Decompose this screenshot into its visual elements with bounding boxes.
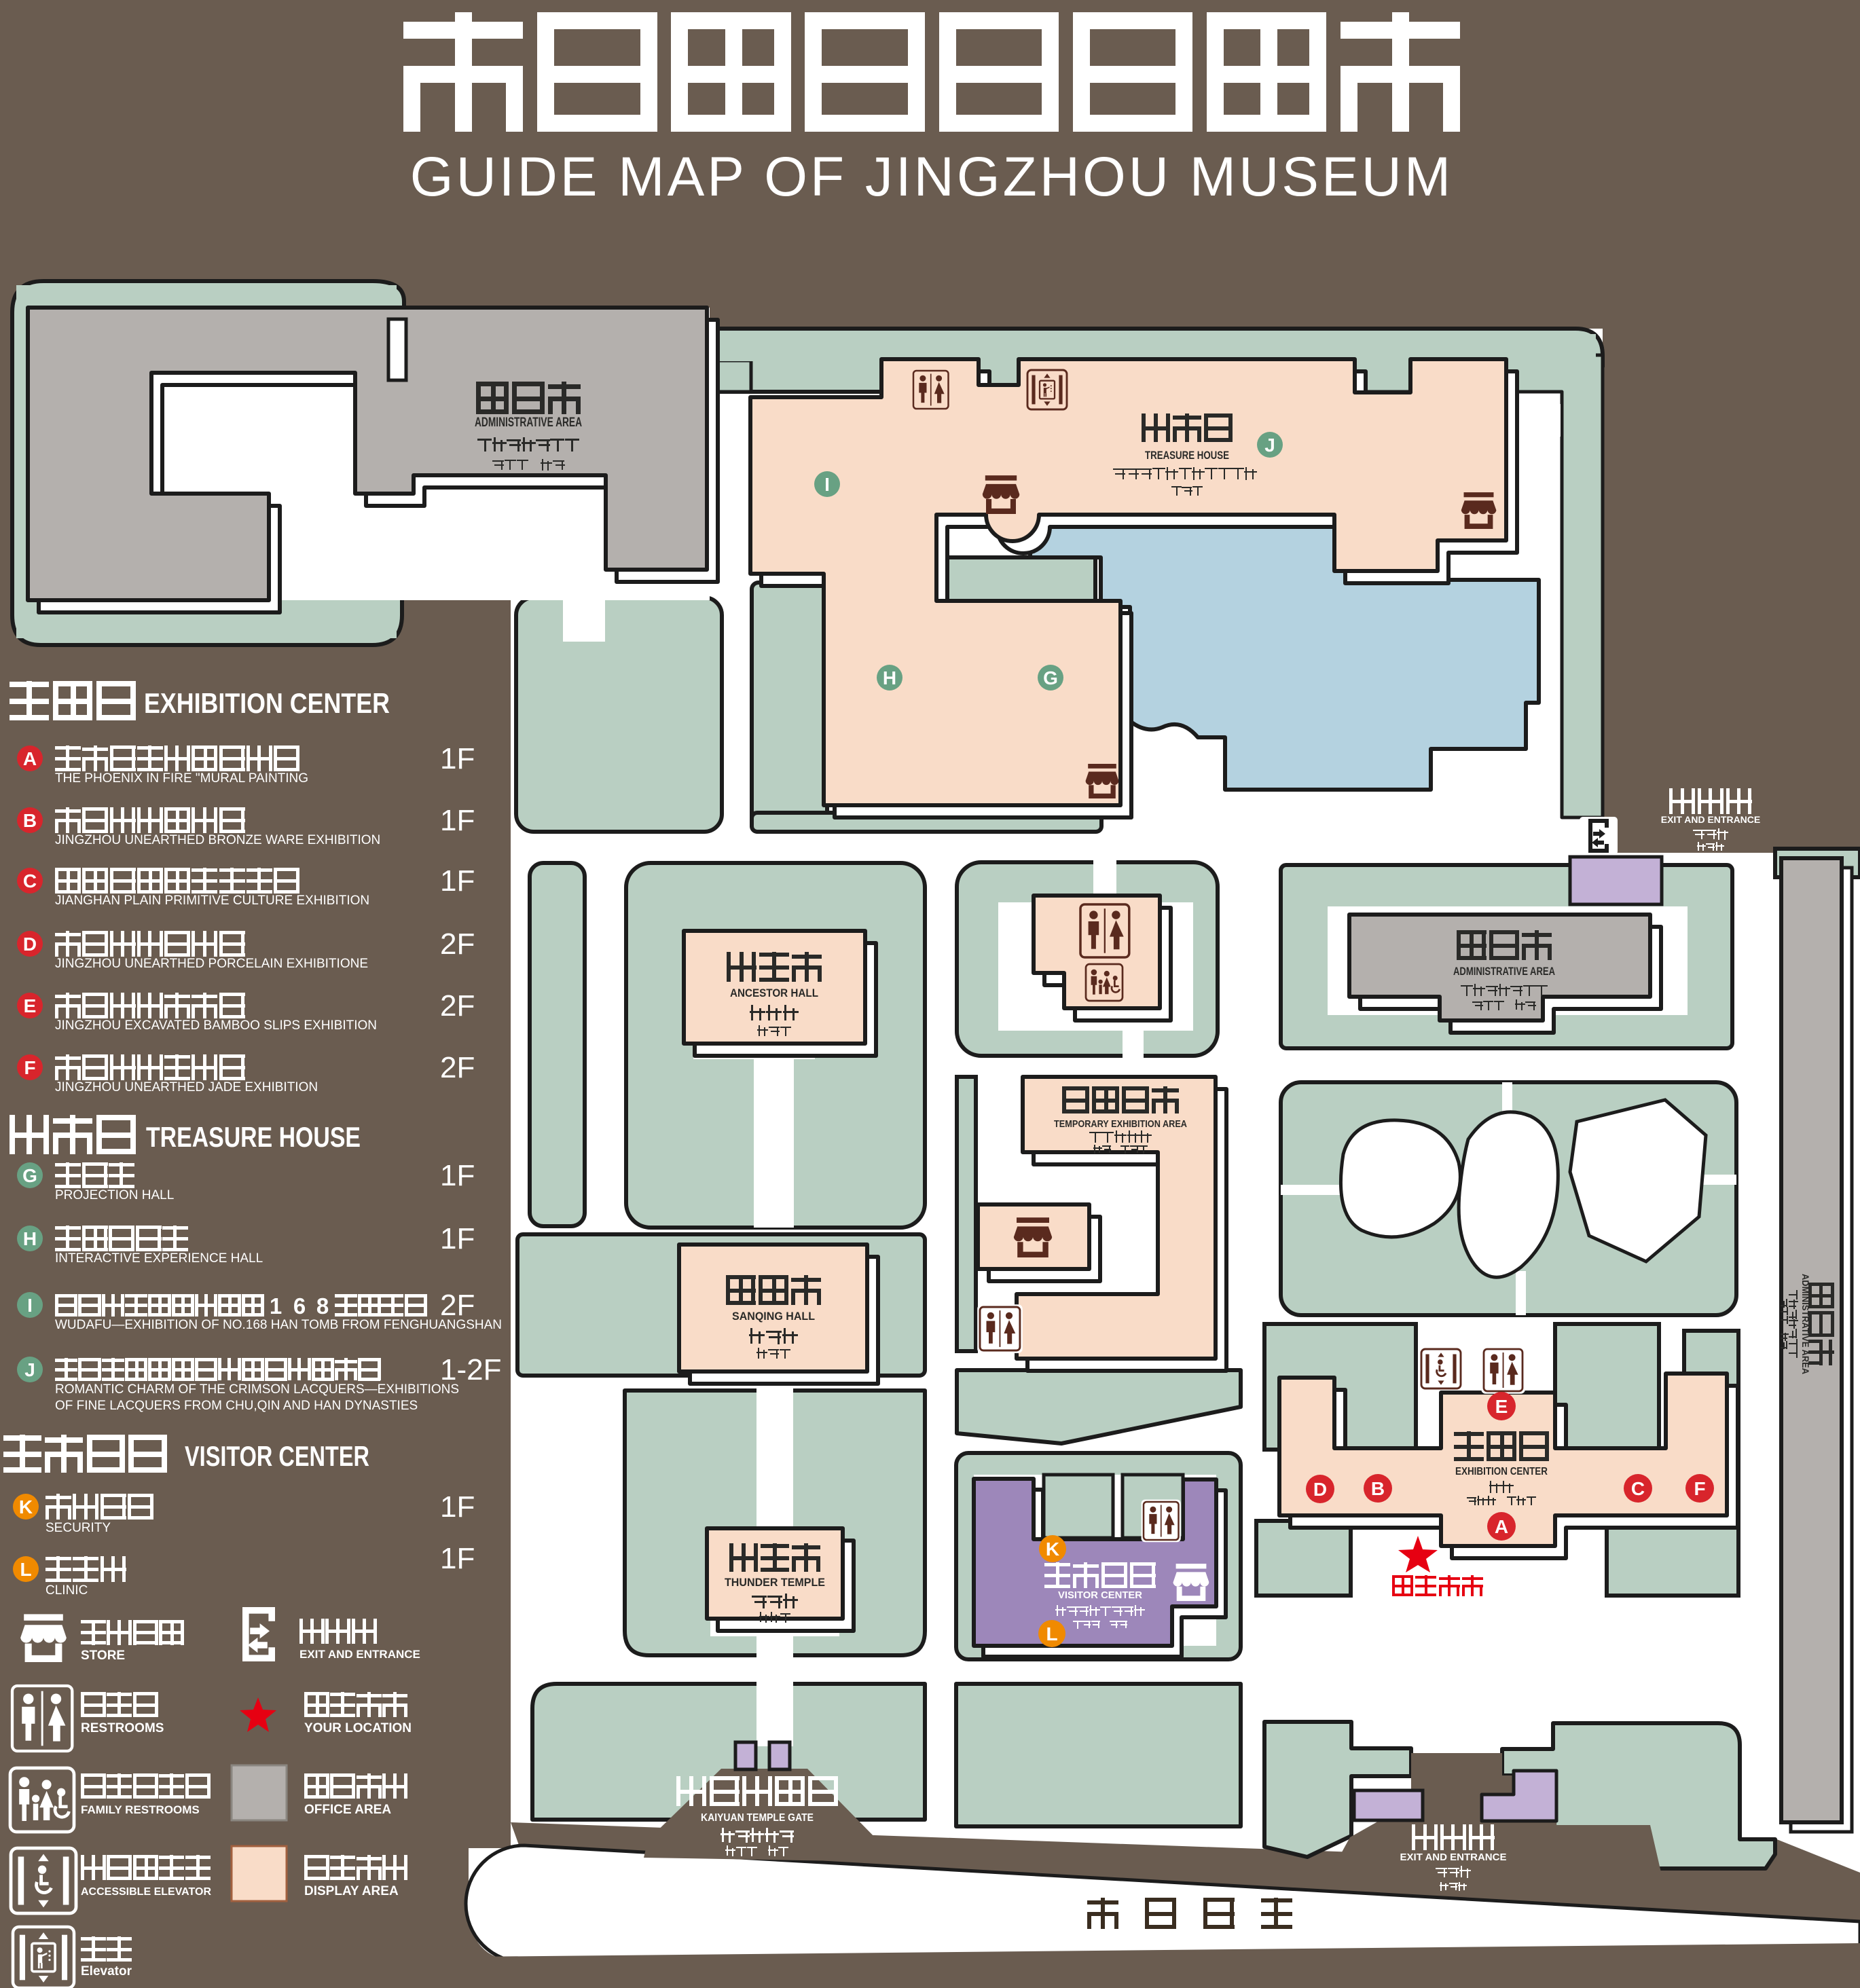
svg-text:1F: 1F [440,1222,475,1255]
svg-text:I: I [27,1295,33,1316]
svg-text:A: A [23,748,37,769]
svg-text:1: 1 [270,1293,282,1319]
svg-text:WUDAFU—EXHIBITION OF NO.168 HA: WUDAFU—EXHIBITION OF NO.168 HAN TOMB FRO… [55,1318,502,1332]
svg-text:ANCESTOR HALL: ANCESTOR HALL [730,987,818,999]
svg-text:8: 8 [316,1293,329,1319]
svg-text:ACCESSIBLE ELEVATOR: ACCESSIBLE ELEVATOR [81,1886,211,1898]
svg-text:VISITOR CENTER: VISITOR CENTER [185,1440,369,1472]
svg-text:1F: 1F [440,864,475,898]
svg-text:D: D [1313,1479,1327,1500]
svg-text:VISITOR CENTER: VISITOR CENTER [1058,1589,1142,1601]
svg-text:J: J [1264,435,1275,456]
svg-text:J: J [24,1359,35,1380]
svg-text:EXIT AND ENTRANCE: EXIT AND ENTRANCE [1661,814,1761,825]
svg-text:INTERACTIVE EXPERIENCE HALL: INTERACTIVE EXPERIENCE HALL [55,1251,263,1266]
svg-text:SECURITY: SECURITY [45,1521,111,1535]
svg-text:KAIYUAN TEMPLE GATE: KAIYUAN TEMPLE GATE [701,1812,814,1824]
svg-text:1-2F: 1-2F [440,1353,501,1386]
svg-text:B: B [23,810,37,831]
svg-text:OFFICE AREA: OFFICE AREA [304,1803,391,1817]
svg-text:K: K [1046,1539,1059,1560]
svg-text:JINGZHOU UNEARTHED PORCELAIN E: JINGZHOU UNEARTHED PORCELAIN EXHIBITIONE [55,957,368,971]
svg-text:EXIT AND ENTRANCE: EXIT AND ENTRANCE [299,1648,420,1661]
svg-text:SANQING HALL: SANQING HALL [732,1310,815,1323]
svg-text:A: A [1495,1516,1508,1537]
svg-text:F: F [1694,1478,1705,1499]
svg-text:Elevator: Elevator [81,1964,132,1978]
svg-text:STORE: STORE [81,1649,125,1663]
svg-text:K: K [19,1496,33,1517]
svg-text:JINGZHOU UNEARTHED JADE EXHIBI: JINGZHOU UNEARTHED JADE EXHIBITION [55,1080,318,1094]
svg-text:2F: 2F [440,927,475,961]
svg-text:ADMINISTRATIVE AREA: ADMINISTRATIVE AREA [475,416,582,430]
svg-text:RESTROOMS: RESTROOMS [81,1721,164,1735]
svg-text:CLINIC: CLINIC [45,1583,88,1598]
svg-text:EXHIBITION CENTER: EXHIBITION CENTER [144,687,390,719]
svg-text:I: I [824,474,830,495]
svg-text:F: F [24,1057,35,1078]
svg-text:2F: 2F [440,989,475,1023]
svg-text:TEMPORARY EXHIBITION AREA: TEMPORARY EXHIBITION AREA [1054,1118,1187,1130]
svg-text:TREASURE HOUSE: TREASURE HOUSE [146,1121,361,1153]
svg-text:PROJECTION HALL: PROJECTION HALL [55,1188,174,1202]
svg-text:L: L [20,1559,31,1580]
svg-text:1F: 1F [440,1542,475,1575]
svg-text:JINGZHOU UNEARTHED BRONZE WARE: JINGZHOU UNEARTHED BRONZE WARE EXHIBITIO… [55,833,380,847]
svg-text:GUIDE MAP OF JINGZHOU MUSEUM: GUIDE MAP OF JINGZHOU MUSEUM [410,146,1453,208]
svg-text:1F: 1F [440,804,475,837]
svg-text:H: H [23,1228,37,1249]
svg-text:ADMINISTRATIVE AREA: ADMINISTRATIVE AREA [1800,1274,1811,1374]
svg-text:2F: 2F [440,1289,475,1322]
svg-text:THUNDER TEMPLE: THUNDER TEMPLE [725,1576,825,1589]
svg-text:H: H [883,667,896,688]
svg-text:ADMINISTRATIVE AREA: ADMINISTRATIVE AREA [1453,965,1555,978]
svg-text:B: B [1371,1478,1385,1499]
svg-text:JINGZHOU EXCAVATED BAMBOO SLIP: JINGZHOU EXCAVATED BAMBOO SLIPS EXHIBITI… [55,1018,377,1033]
svg-text:2F: 2F [440,1051,475,1084]
svg-text:TREASURE HOUSE: TREASURE HOUSE [1145,449,1229,462]
svg-text:DISPLAY AREA: DISPLAY AREA [304,1884,399,1898]
svg-text:1F: 1F [440,1490,475,1524]
svg-text:FAMILY RESTROOMS: FAMILY RESTROOMS [81,1803,200,1816]
svg-text:EXHIBITION CENTER: EXHIBITION CENTER [1455,1466,1548,1477]
svg-text:1F: 1F [440,1159,475,1192]
svg-text:L: L [1046,1623,1057,1644]
svg-text:ROMANTIC CHARM OF THE CRIMSON: ROMANTIC CHARM OF THE CRIMSON LACQUERS—E… [55,1382,459,1397]
svg-text:6: 6 [293,1293,306,1319]
svg-text:JIANGHAN PLAIN PRIMITIVE CULTU: JIANGHAN PLAIN PRIMITIVE CULTURE EXHIBIT… [55,894,369,908]
svg-text:E: E [1495,1396,1508,1417]
svg-text:OF FINE LACQUERS FROM CHU,QIN: OF FINE LACQUERS FROM CHU,QIN AND HAN DY… [55,1399,418,1413]
svg-text:E: E [24,995,37,1016]
svg-text:C: C [1631,1478,1645,1499]
svg-text:YOUR LOCATION: YOUR LOCATION [304,1721,412,1735]
svg-text:EXIT AND ENTRANCE: EXIT AND ENTRANCE [1400,1852,1507,1863]
svg-text:THE PHOENIX IN FIRE "MURAL PAI: THE PHOENIX IN FIRE "MURAL PAINTING [55,771,308,786]
svg-text:G: G [1043,667,1058,688]
svg-text:G: G [22,1165,37,1186]
svg-text:D: D [23,934,37,955]
svg-text:1F: 1F [440,742,475,775]
svg-text:C: C [23,870,37,891]
